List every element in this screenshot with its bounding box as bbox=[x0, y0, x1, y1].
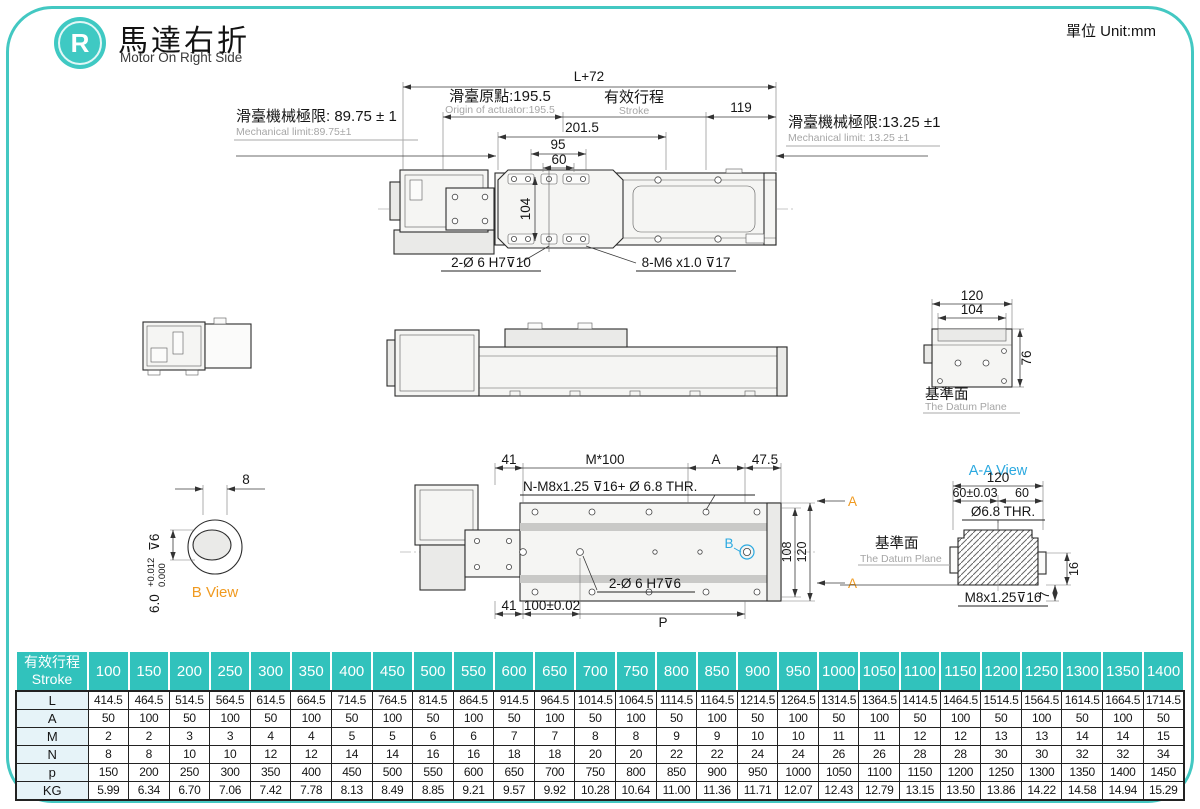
dim-total-length: L+72 bbox=[574, 69, 604, 84]
table-cell: 50 bbox=[250, 710, 291, 728]
stroke-header-cell: 1150 bbox=[940, 651, 981, 691]
table-cell: 1714.5 bbox=[1143, 691, 1184, 710]
callout-screw-top: 8-M6 x1.0 ⊽17 bbox=[642, 255, 731, 270]
table-cell: 50 bbox=[413, 710, 454, 728]
table-cell: 914.5 bbox=[494, 691, 535, 710]
table-cell: 600 bbox=[453, 764, 494, 782]
callout-thread-bottom: N-M8x1.25 ⊽16+ Ø 6.8 THR. bbox=[523, 479, 697, 494]
aa-dim-7: 7 bbox=[1038, 591, 1052, 598]
table-cell: 1000 bbox=[778, 764, 819, 782]
table-cell: 7.78 bbox=[291, 782, 332, 801]
table-cell: 8.85 bbox=[413, 782, 454, 801]
table-row: L414.5464.5514.5564.5614.5664.5714.5764.… bbox=[16, 691, 1184, 710]
table-cell: 100 bbox=[697, 710, 738, 728]
b-view-label: B View bbox=[192, 584, 239, 601]
table-cell: 814.5 bbox=[413, 691, 454, 710]
table-cell: 50 bbox=[900, 710, 941, 728]
table-cell: 100 bbox=[940, 710, 981, 728]
actuator-bottom-view bbox=[400, 485, 815, 601]
stroke-header-cell: 300 bbox=[250, 651, 291, 691]
table-cell: 8 bbox=[88, 746, 129, 764]
table-cell: 15 bbox=[1143, 728, 1184, 746]
table-cell: 864.5 bbox=[453, 691, 494, 710]
top-view-drawing: L+72 滑臺原點:195.5 Origin of actuator:195.5… bbox=[228, 70, 973, 282]
stroke-header-cell: 800 bbox=[656, 651, 697, 691]
table-cell: 14.58 bbox=[1062, 782, 1103, 801]
table-cell: 10 bbox=[169, 746, 210, 764]
table-cell: 100 bbox=[1021, 710, 1062, 728]
table-cell: 100 bbox=[129, 710, 170, 728]
dim-b-8: 8 bbox=[242, 472, 250, 487]
limit-right-en: Mechanical limit: 13.25 ±1 bbox=[788, 132, 909, 144]
table-cell: 9.57 bbox=[494, 782, 535, 801]
table-cell: 20 bbox=[575, 746, 616, 764]
table-cell: 50 bbox=[494, 710, 535, 728]
table-cell: 1564.5 bbox=[1021, 691, 1062, 710]
table-cell: 4 bbox=[250, 728, 291, 746]
row-label: KG bbox=[16, 782, 88, 801]
dim-201-5: 201.5 bbox=[565, 120, 599, 135]
aa-datum-en: The Datum Plane bbox=[860, 553, 942, 565]
table-cell: 1214.5 bbox=[737, 691, 778, 710]
stroke-header-cell: 1000 bbox=[818, 651, 859, 691]
table-cell: 950 bbox=[737, 764, 778, 782]
table-cell: 14 bbox=[1062, 728, 1103, 746]
table-cell: 11 bbox=[859, 728, 900, 746]
table-row: N881010121214141616181820202222242426262… bbox=[16, 746, 1184, 764]
aa-callout-hole: Ø6.8 THR. bbox=[971, 504, 1035, 519]
table-cell: 1364.5 bbox=[859, 691, 900, 710]
origin-label-zh: 滑臺原點:195.5 bbox=[449, 88, 551, 105]
row-label: M bbox=[16, 728, 88, 746]
table-cell: 150 bbox=[88, 764, 129, 782]
dim-41-bottom: 41 bbox=[501, 598, 516, 613]
stroke-header-cell: 1200 bbox=[981, 651, 1022, 691]
table-cell: 50 bbox=[818, 710, 859, 728]
table-cell: 50 bbox=[1062, 710, 1103, 728]
stroke-header-cell: 450 bbox=[372, 651, 413, 691]
table-cell: 14.94 bbox=[1102, 782, 1143, 801]
table-cell: 1114.5 bbox=[656, 691, 697, 710]
table-cell: 4 bbox=[291, 728, 332, 746]
table-cell: 28 bbox=[940, 746, 981, 764]
aa-dim-16: 16 bbox=[1067, 562, 1081, 576]
stroke-header-cell: 1400 bbox=[1143, 651, 1184, 691]
table-cell: 14 bbox=[372, 746, 413, 764]
table-cell: 34 bbox=[1143, 746, 1184, 764]
table-cell: 11.71 bbox=[737, 782, 778, 801]
table-cell: 30 bbox=[981, 746, 1022, 764]
stroke-label-zh: 有效行程 bbox=[604, 89, 664, 106]
table-cell: 400 bbox=[291, 764, 332, 782]
table-cell: 14 bbox=[331, 746, 372, 764]
stroke-header-cell: 750 bbox=[616, 651, 657, 691]
stroke-header-cell: 1050 bbox=[859, 651, 900, 691]
table-cell: 32 bbox=[1062, 746, 1103, 764]
actuator-side-view bbox=[387, 323, 787, 396]
aa-callout-thread: M8x1.25⊽16 bbox=[965, 590, 1042, 605]
dim-end-76: 76 bbox=[1019, 350, 1034, 365]
table-cell: 8.13 bbox=[331, 782, 372, 801]
table-cell: 3 bbox=[169, 728, 210, 746]
motor-end-view bbox=[143, 318, 251, 375]
stroke-header-cell: 200 bbox=[169, 651, 210, 691]
table-cell: 850 bbox=[656, 764, 697, 782]
table-cell: 2 bbox=[129, 728, 170, 746]
table-cell: 13 bbox=[981, 728, 1022, 746]
table-cell: 24 bbox=[737, 746, 778, 764]
table-cell: 50 bbox=[1143, 710, 1184, 728]
dim-119: 119 bbox=[730, 100, 752, 115]
stroke-header-cell: 400 bbox=[331, 651, 372, 691]
aa-datum-zh: 基準面 bbox=[875, 535, 919, 552]
b-view-detail: 8 6.0 +0.012 0.000 ⊽6 B View bbox=[146, 472, 265, 613]
dim-60: 60 bbox=[551, 152, 566, 167]
stroke-header-cell: 550 bbox=[453, 651, 494, 691]
limit-left-zh: 滑臺機械極限: 89.75 ± 1 bbox=[236, 108, 397, 125]
table-cell: 6.70 bbox=[169, 782, 210, 801]
table-cell: 50 bbox=[737, 710, 778, 728]
side-view-drawing: 120 104 76 基準面 The Datum Plane bbox=[120, 293, 1020, 415]
table-cell: 1150 bbox=[900, 764, 941, 782]
table-cell: 9.92 bbox=[534, 782, 575, 801]
table-cell: 32 bbox=[1102, 746, 1143, 764]
aa-dim-60-tol: 60±0.03 bbox=[952, 486, 997, 500]
table-cell: 22 bbox=[656, 746, 697, 764]
table-cell: 18 bbox=[494, 746, 535, 764]
table-cell: 1350 bbox=[1062, 764, 1103, 782]
table-cell: 15.29 bbox=[1143, 782, 1184, 801]
dim-end-104: 104 bbox=[961, 302, 984, 317]
table-cell: 500 bbox=[372, 764, 413, 782]
table-cell: 50 bbox=[575, 710, 616, 728]
table-cell: 1514.5 bbox=[981, 691, 1022, 710]
table-cell: 100 bbox=[616, 710, 657, 728]
table-cell: 464.5 bbox=[129, 691, 170, 710]
dim-p: P bbox=[658, 615, 667, 630]
dim-47-5: 47.5 bbox=[752, 452, 778, 467]
table-cell: 14 bbox=[1102, 728, 1143, 746]
stroke-header-cell: 100 bbox=[88, 651, 129, 691]
table-cell: 12.79 bbox=[859, 782, 900, 801]
table-cell: 1614.5 bbox=[1062, 691, 1103, 710]
stroke-header-cell: 250 bbox=[210, 651, 251, 691]
table-cell: 14.22 bbox=[1021, 782, 1062, 801]
table-row: p150200250300350400450500550600650700750… bbox=[16, 764, 1184, 782]
datum-label-en: The Datum Plane bbox=[925, 401, 1007, 413]
dim-95: 95 bbox=[550, 137, 565, 152]
dim-41-top: 41 bbox=[501, 452, 516, 467]
b-view-tolerance: 6.0 +0.012 0.000 ⊽6 bbox=[146, 534, 168, 613]
table-cell: 350 bbox=[250, 764, 291, 782]
table-cell: 50 bbox=[331, 710, 372, 728]
table-cell: 900 bbox=[697, 764, 738, 782]
stroke-label-en: Stroke bbox=[619, 105, 650, 117]
aa-dim-60: 60 bbox=[1015, 486, 1029, 500]
table-cell: 24 bbox=[778, 746, 819, 764]
table-cell: 3 bbox=[210, 728, 251, 746]
stroke-header-cell: 950 bbox=[778, 651, 819, 691]
table-cell: 9.21 bbox=[453, 782, 494, 801]
table-cell: 12.07 bbox=[778, 782, 819, 801]
table-cell: 8 bbox=[616, 728, 657, 746]
table-cell: 1050 bbox=[818, 764, 859, 782]
aa-dim-120: 120 bbox=[987, 470, 1010, 485]
table-cell: 100 bbox=[210, 710, 251, 728]
table-cell: 22 bbox=[697, 746, 738, 764]
table-cell: 100 bbox=[453, 710, 494, 728]
row-label: N bbox=[16, 746, 88, 764]
dim-100-tol: 100±0.02 bbox=[524, 598, 580, 613]
table-cell: 20 bbox=[616, 746, 657, 764]
table-cell: 50 bbox=[169, 710, 210, 728]
table-cell: 414.5 bbox=[88, 691, 129, 710]
stroke-header-cell: 850 bbox=[697, 651, 738, 691]
table-cell: 6 bbox=[413, 728, 454, 746]
table-cell: 700 bbox=[534, 764, 575, 782]
table-cell: 1314.5 bbox=[818, 691, 859, 710]
table-cell: 2 bbox=[88, 728, 129, 746]
table-cell: 6 bbox=[453, 728, 494, 746]
table-cell: 1400 bbox=[1102, 764, 1143, 782]
table-cell: 1064.5 bbox=[616, 691, 657, 710]
bore-nominal: 6.0 bbox=[147, 594, 162, 613]
table-cell: 11.36 bbox=[697, 782, 738, 801]
table-cell: 9 bbox=[697, 728, 738, 746]
callout-dowel-bottom: 2-Ø 6 H7⊽6 bbox=[609, 576, 681, 591]
table-cell: 8.49 bbox=[372, 782, 413, 801]
row-label: L bbox=[16, 691, 88, 710]
table-row: A501005010050100501005010050100501005010… bbox=[16, 710, 1184, 728]
table-cell: 100 bbox=[372, 710, 413, 728]
table-cell: 12 bbox=[250, 746, 291, 764]
table-cell: 13 bbox=[1021, 728, 1062, 746]
stroke-header-cell: 600 bbox=[494, 651, 535, 691]
table-cell: 800 bbox=[616, 764, 657, 782]
aa-view-detail: A-A View 120 60±0.03 60 Ø6.8 THR. 基準面 Th… bbox=[840, 463, 1081, 606]
table-cell: 5 bbox=[331, 728, 372, 746]
table-cell: 764.5 bbox=[372, 691, 413, 710]
table-cell: 750 bbox=[575, 764, 616, 782]
table-cell: 12 bbox=[291, 746, 332, 764]
table-cell: 7 bbox=[494, 728, 535, 746]
table-cell: 8 bbox=[129, 746, 170, 764]
table-cell: 7.42 bbox=[250, 782, 291, 801]
table-cell: 614.5 bbox=[250, 691, 291, 710]
logo-letter: R bbox=[71, 28, 90, 59]
page-subtitle: Motor On Right Side bbox=[120, 50, 242, 65]
limit-right-zh: 滑臺機械極限:13.25 ±1 bbox=[788, 114, 940, 131]
table-cell: 1464.5 bbox=[940, 691, 981, 710]
table-cell: 1014.5 bbox=[575, 691, 616, 710]
table-cell: 16 bbox=[413, 746, 454, 764]
table-cell: 100 bbox=[1102, 710, 1143, 728]
stroke-header-cell: 1350 bbox=[1102, 651, 1143, 691]
table-cell: 13.86 bbox=[981, 782, 1022, 801]
bore-depth: ⊽6 bbox=[147, 534, 162, 551]
stroke-header-cell: 1100 bbox=[900, 651, 941, 691]
table-cell: 100 bbox=[859, 710, 900, 728]
stroke-header-corner: 有效行程Stroke bbox=[16, 651, 88, 691]
table-cell: 100 bbox=[778, 710, 819, 728]
stroke-header-cell: 150 bbox=[129, 651, 170, 691]
table-cell: 514.5 bbox=[169, 691, 210, 710]
table-cell: 450 bbox=[331, 764, 372, 782]
table-cell: 100 bbox=[534, 710, 575, 728]
table-cell: 1250 bbox=[981, 764, 1022, 782]
table-cell: 11.00 bbox=[656, 782, 697, 801]
table-cell: 564.5 bbox=[210, 691, 251, 710]
table-cell: 12 bbox=[940, 728, 981, 746]
carriage-top-view bbox=[498, 166, 623, 252]
dim-104: 104 bbox=[518, 197, 533, 220]
table-cell: 1414.5 bbox=[900, 691, 941, 710]
stroke-header-cell: 500 bbox=[413, 651, 454, 691]
stroke-header-cell: 1250 bbox=[1021, 651, 1062, 691]
table-cell: 1100 bbox=[859, 764, 900, 782]
table-cell: 550 bbox=[413, 764, 454, 782]
stroke-header-cell: 1300 bbox=[1062, 651, 1103, 691]
callout-dowel-top: 2-Ø 6 H7⊽10 bbox=[451, 255, 531, 270]
dim-a: A bbox=[711, 452, 720, 467]
table-cell: 650 bbox=[494, 764, 535, 782]
bottom-view-drawing: 8 6.0 +0.012 0.000 ⊽6 B View bbox=[115, 455, 1115, 650]
table-cell: 250 bbox=[169, 764, 210, 782]
table-cell: 6.34 bbox=[129, 782, 170, 801]
rail-end-view: 120 104 76 基準面 The Datum Plane bbox=[923, 288, 1034, 413]
stroke-table: 有效行程Stroke100150200250300350400450500550… bbox=[15, 650, 1185, 801]
table-cell: 11 bbox=[818, 728, 859, 746]
motor-top-view bbox=[390, 170, 494, 254]
table-cell: 200 bbox=[129, 764, 170, 782]
dim-120-bottom: 120 bbox=[795, 542, 809, 563]
dim-end-120: 120 bbox=[961, 288, 984, 303]
table-cell: 1200 bbox=[940, 764, 981, 782]
dim-m100: M*100 bbox=[585, 452, 624, 467]
table-cell: 28 bbox=[900, 746, 941, 764]
table-cell: 16 bbox=[453, 746, 494, 764]
brand-logo: R bbox=[54, 17, 106, 69]
stroke-header-cell: 350 bbox=[291, 651, 332, 691]
table-row: M22334455667788991010111112121313141415 bbox=[16, 728, 1184, 746]
row-label: A bbox=[16, 710, 88, 728]
table-cell: 7.06 bbox=[210, 782, 251, 801]
stroke-header-cell: 900 bbox=[737, 651, 778, 691]
table-cell: 13.50 bbox=[940, 782, 981, 801]
row-label: p bbox=[16, 764, 88, 782]
table-cell: 7 bbox=[534, 728, 575, 746]
table-cell: 1450 bbox=[1143, 764, 1184, 782]
table-cell: 300 bbox=[210, 764, 251, 782]
table-cell: 50 bbox=[981, 710, 1022, 728]
table-cell: 10 bbox=[737, 728, 778, 746]
table-cell: 1164.5 bbox=[697, 691, 738, 710]
table-cell: 1264.5 bbox=[778, 691, 819, 710]
section-a-label-bottom: A bbox=[848, 576, 857, 591]
table-cell: 12 bbox=[900, 728, 941, 746]
table-cell: 10 bbox=[778, 728, 819, 746]
table-cell: 26 bbox=[859, 746, 900, 764]
section-a-label-top: A bbox=[848, 494, 857, 509]
unit-label: 單位 Unit:mm bbox=[1066, 20, 1156, 41]
table-cell: 13.15 bbox=[900, 782, 941, 801]
table-cell: 10 bbox=[210, 746, 251, 764]
table-cell: 964.5 bbox=[534, 691, 575, 710]
table-cell: 10.64 bbox=[616, 782, 657, 801]
stroke-header-cell: 650 bbox=[534, 651, 575, 691]
bore-tol-lower: 0.000 bbox=[157, 563, 168, 587]
table-row: KG5.996.346.707.067.427.788.138.498.859.… bbox=[16, 782, 1184, 801]
origin-label-en: Origin of actuator:195.5 bbox=[445, 104, 555, 116]
table-cell: 30 bbox=[1021, 746, 1062, 764]
table-cell: 5 bbox=[372, 728, 413, 746]
table-cell: 50 bbox=[656, 710, 697, 728]
table-cell: 1664.5 bbox=[1102, 691, 1143, 710]
table-cell: 8 bbox=[575, 728, 616, 746]
table-cell: 18 bbox=[534, 746, 575, 764]
dim-108: 108 bbox=[780, 542, 794, 563]
table-cell: 1300 bbox=[1021, 764, 1062, 782]
table-cell: 100 bbox=[291, 710, 332, 728]
stroke-header-cell: 700 bbox=[575, 651, 616, 691]
limit-left-en: Mechanical limit:89.75±1 bbox=[236, 126, 352, 138]
table-cell: 5.99 bbox=[88, 782, 129, 801]
table-cell: 664.5 bbox=[291, 691, 332, 710]
table-cell: 9 bbox=[656, 728, 697, 746]
b-marker-label: B bbox=[724, 536, 733, 551]
bore-tol-upper: +0.012 bbox=[146, 558, 157, 587]
table-cell: 50 bbox=[88, 710, 129, 728]
table-cell: 26 bbox=[818, 746, 859, 764]
table-cell: 10.28 bbox=[575, 782, 616, 801]
table-cell: 714.5 bbox=[331, 691, 372, 710]
table-cell: 12.43 bbox=[818, 782, 859, 801]
